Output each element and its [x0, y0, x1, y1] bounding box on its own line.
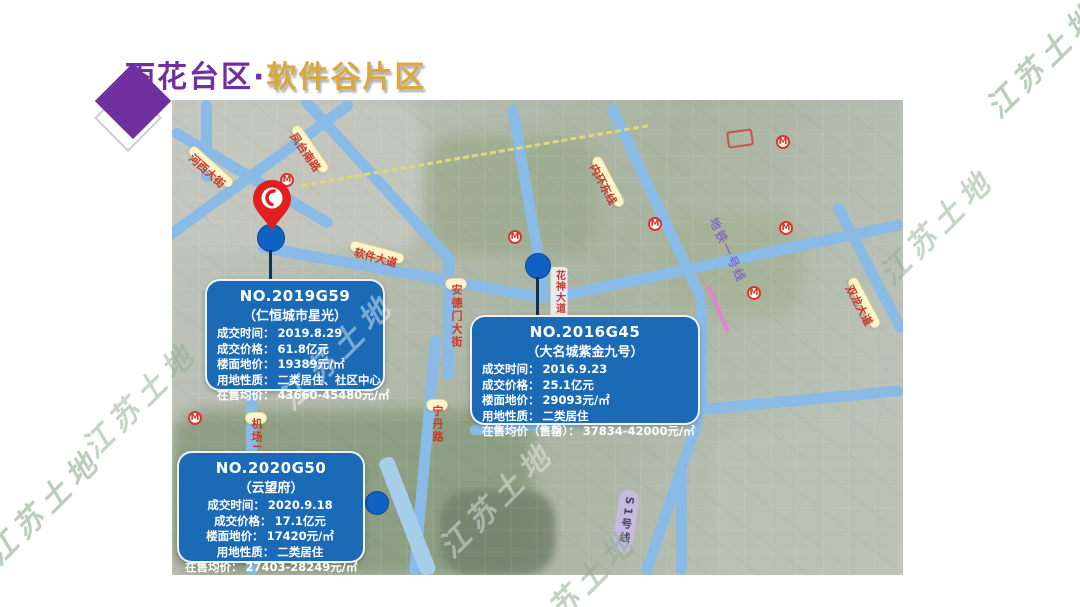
- metro-station-icon: M: [776, 135, 790, 149]
- detail-label: 用地性质：: [482, 409, 540, 423]
- parcel-detail-row: 用地性质：二类居住、社区中心: [217, 373, 375, 389]
- detail-value: 二类居住、社区中心: [278, 373, 382, 387]
- detail-label: 在售均价（售罄）：: [482, 424, 580, 438]
- parcel-detail-row: 用地性质：二类居住: [185, 545, 355, 561]
- detail-label: 用地性质：: [217, 545, 275, 559]
- detail-value: 29093元/㎡: [543, 393, 610, 407]
- page-title: 雨花台区·软件谷片区: [125, 52, 426, 96]
- parcel-callout-2020G50: NO.2020G50 （云望府） 成交时间：2020.9.18成交价格：17.1…: [177, 451, 365, 563]
- slide: 雨花台区·软件谷片区 河西大街凤台南路软件大道安: [0, 0, 1080, 607]
- parcel-detail-row: 在售均价：27403-28249元/㎡: [185, 560, 355, 575]
- detail-label: 成交价格：: [482, 378, 540, 392]
- detail-value: 17420元/㎡: [267, 529, 334, 543]
- road-line: [676, 470, 687, 575]
- metro-station-icon: M: [747, 286, 761, 300]
- detail-value: 37834-42000元/㎡: [583, 424, 695, 438]
- detail-value: 2020.9.18: [268, 498, 333, 512]
- metro-station-icon: M: [779, 221, 793, 235]
- parcel-callout-2016G45: NO.2016G45 （大名城紫金九号） 成交时间：2016.9.23成交价格：…: [470, 315, 700, 425]
- detail-label: 成交价格：: [214, 514, 272, 528]
- title-area: 软件谷片区: [266, 60, 426, 95]
- parcel-name: （仁恒城市星光）: [207, 305, 383, 324]
- map-road-label: 花神大道: [551, 267, 568, 317]
- parcel-detail-row: 成交价格：25.1亿元: [482, 378, 690, 394]
- parcel-detail-row: 成交价格：17.1亿元: [185, 514, 355, 530]
- parcel-id: NO.2019G59: [207, 287, 383, 305]
- parcel-detail-row: 楼面地价：19389元/㎡: [217, 357, 375, 373]
- detail-value: 27403-28249元/㎡: [246, 560, 358, 574]
- detail-value: 2019.8.29: [278, 326, 343, 340]
- parcel-detail-row: 成交价格：61.8亿元: [217, 342, 375, 358]
- title-district: 雨花台区: [125, 60, 253, 95]
- metro-station-icon: M: [188, 411, 202, 425]
- parcel-id: NO.2020G50: [179, 459, 363, 477]
- parcel-id: NO.2016G45: [472, 323, 698, 341]
- detail-label: 用地性质：: [217, 373, 275, 387]
- detail-label: 成交价格：: [217, 342, 275, 356]
- parcel-detail-row: 楼面地价：17420元/㎡: [185, 529, 355, 545]
- detail-value: 二类居住: [277, 545, 323, 559]
- watermark-text: 江苏土地: [0, 437, 110, 573]
- detail-label: 楼面地价：: [217, 357, 275, 371]
- detail-label: 成交时间：: [217, 326, 275, 340]
- detail-value: 25.1亿元: [543, 378, 594, 392]
- parcel-name: （云望府）: [179, 477, 363, 496]
- parcel-marker-dot: [525, 253, 551, 279]
- detail-value: 43660-45480元/㎡: [278, 388, 390, 402]
- metro-station-icon: M: [508, 230, 522, 244]
- metro-station-icon: M: [648, 217, 662, 231]
- detail-value: 19389元/㎡: [278, 357, 345, 371]
- highlighted-parcel-outline: [726, 128, 754, 148]
- detail-label: 楼面地价：: [482, 393, 540, 407]
- parcel-detail-row: 在售均价：43660-45480元/㎡: [217, 388, 375, 404]
- parcel-detail-row: 用地性质：二类居住: [482, 409, 690, 425]
- detail-label: 成交时间：: [207, 498, 265, 512]
- parcel-marker-dot: [365, 491, 389, 515]
- detail-value: 2016.9.23: [543, 362, 608, 376]
- parcel-detail-row: 楼面地价：29093元/㎡: [482, 393, 690, 409]
- location-pin-icon: [250, 178, 294, 234]
- detail-label: 楼面地价：: [206, 529, 264, 543]
- parcel-detail-row: 成交时间：2020.9.18: [185, 498, 355, 514]
- title-separator: ·: [253, 60, 266, 95]
- satellite-map: 河西大街凤台南路软件大道安德门大街内环东线双龙大道宁丹路机场二通道花神大道S1号…: [172, 100, 903, 575]
- map-road-label: 机场二通道: [245, 412, 267, 424]
- detail-value: 61.8亿元: [278, 342, 329, 356]
- parcel-detail-row: 成交时间：2019.8.29: [217, 326, 375, 342]
- detail-label: 在售均价：: [217, 388, 275, 402]
- marker-stem: [269, 250, 272, 279]
- parcel-detail-row: 在售均价（售罄）：37834-42000元/㎡: [482, 424, 690, 440]
- parcel-name: （大名城紫金九号）: [472, 341, 698, 360]
- slide-header: 雨花台区·软件谷片区: [0, 0, 1080, 100]
- detail-label: 成交时间：: [482, 362, 540, 376]
- map-road-label: 安德门大街: [445, 278, 467, 290]
- parcel-callout-2019G59: NO.2019G59 （仁恒城市星光） 成交时间：2019.8.29成交价格：6…: [205, 279, 385, 391]
- detail-label: 在售均价：: [185, 560, 243, 574]
- parcel-detail-row: 成交时间：2016.9.23: [482, 362, 690, 378]
- map-road-label: 宁丹路: [426, 399, 448, 411]
- marker-stem: [536, 277, 539, 315]
- detail-value: 二类居住: [543, 409, 589, 423]
- detail-value: 17.1亿元: [275, 514, 326, 528]
